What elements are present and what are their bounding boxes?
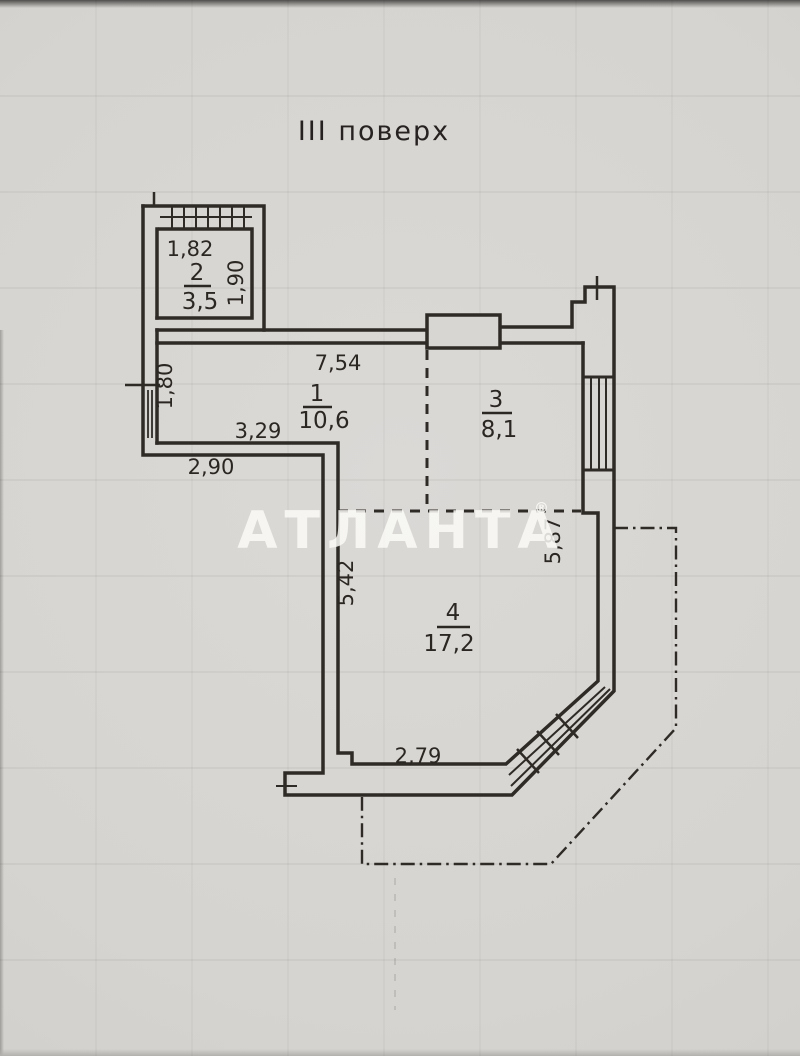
room2-window-band	[154, 192, 252, 228]
floor-plan-drawing: ІІІ поверх 1,82 2 3,5 1,90 7,54 1 10,6 1…	[0, 0, 800, 1056]
hall-top-dim: 7,54	[315, 351, 362, 375]
hall-inner-dim: 3,29	[235, 419, 282, 443]
room2-area: 3,5	[182, 289, 219, 315]
agency-watermark: АТЛАНТА ®	[237, 499, 564, 561]
hall-left-window-dim: 1,80	[153, 363, 177, 410]
zone-partitions	[338, 350, 581, 511]
watermark-text: АТЛАНТА	[237, 501, 564, 561]
room3-number: 3	[489, 387, 504, 413]
entrance-door-block	[427, 315, 500, 348]
right-wall-window	[583, 377, 614, 470]
balcony-outline	[362, 528, 676, 864]
diagonal-window	[509, 687, 610, 786]
room4-number: 4	[446, 600, 461, 626]
scanned-floor-plan-page: ІІІ поверх 1,82 2 3,5 1,90 7,54 1 10,6 1…	[0, 0, 800, 1056]
room4-bottom-dim: 2,79	[395, 744, 442, 768]
room4-left-dim: 5,42	[334, 560, 358, 607]
room1-number: 1	[310, 381, 325, 407]
room2-number: 2	[190, 260, 205, 286]
room1-area: 10,6	[298, 408, 349, 434]
room2-depth-dim: 1,90	[224, 260, 248, 307]
room2-width-dim: 1,82	[167, 237, 214, 261]
registered-mark: ®	[534, 499, 549, 517]
hall-bottom-dim: 2,90	[188, 455, 235, 479]
floor-title: ІІІ поверх	[298, 116, 450, 147]
room4-area: 17,2	[423, 631, 474, 657]
room3-area: 8,1	[481, 417, 518, 443]
